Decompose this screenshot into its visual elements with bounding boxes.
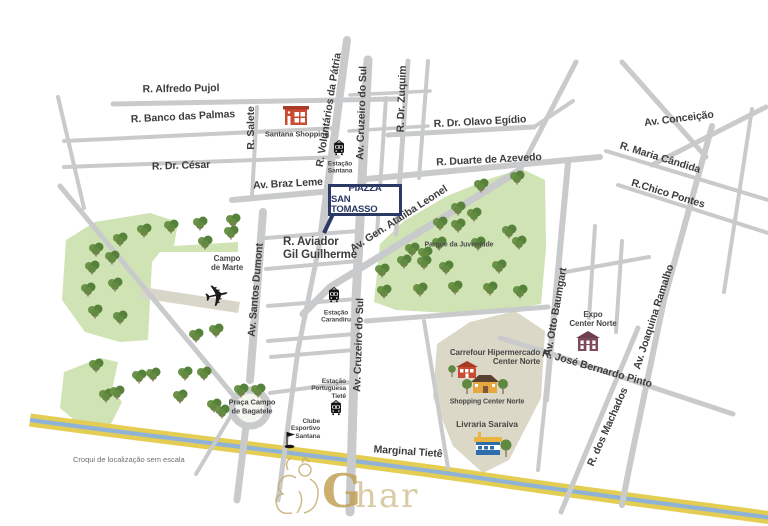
- santana-shopping-icon: [283, 106, 309, 125]
- poi-carrefour: Carrefour Hipermercado Center Norte: [450, 348, 540, 366]
- callout-line1: PIAZZA: [348, 184, 381, 195]
- watermark-har: har: [355, 479, 419, 513]
- poi-expo-center-norte: Expo Center Norte: [569, 310, 616, 328]
- poi-estacao-carandiru: Estação Carandiru: [321, 310, 351, 325]
- airplane-icon: ✈: [201, 277, 233, 316]
- street-alfredo-pujol: R. Alfredo Pujol: [143, 83, 220, 95]
- expo-center-norte-icon: [576, 331, 600, 351]
- poi-livraria-saraiva: Livraria Saraiva: [456, 420, 518, 429]
- callout-line2: SAN TOMASSO: [331, 195, 399, 217]
- estacao-portuguesa-icon: [331, 401, 341, 416]
- poi-estacao-portuguesa-tiete: Estação Portuguesa Tietê: [311, 378, 346, 400]
- scale-note: Croqui de localização sem escala: [73, 455, 185, 464]
- location-map: ✈: [0, 0, 768, 526]
- poi-shopping-center-norte: Shopping Center Norte: [450, 399, 525, 406]
- piazza-san-tomasso-callout: PIAZZA SAN TOMASSO: [328, 184, 402, 216]
- street-dr-zuquim: R. Dr. Zuquim: [396, 65, 409, 132]
- poi-parque-da-juventude: Parque da Juventude: [425, 242, 494, 249]
- street-salete: R. Salete: [246, 106, 257, 149]
- poi-clube-esportivo-santana: Clube Esportivo Santana: [291, 418, 320, 440]
- poi-santana-shopping: Santana Shopping: [265, 130, 329, 138]
- poi-campo-de-marte: Campo de Marte: [211, 254, 243, 272]
- poi-estacao-santana: Estação Santana: [328, 161, 353, 176]
- street-dr-cesar: R. Dr. César: [152, 160, 211, 173]
- poi-praca-campo-de-bagatele: Praça Campo de Bagatele: [229, 398, 276, 415]
- street-aviador-gil-guilherme: R. Aviador Gil Guilherme: [283, 236, 357, 262]
